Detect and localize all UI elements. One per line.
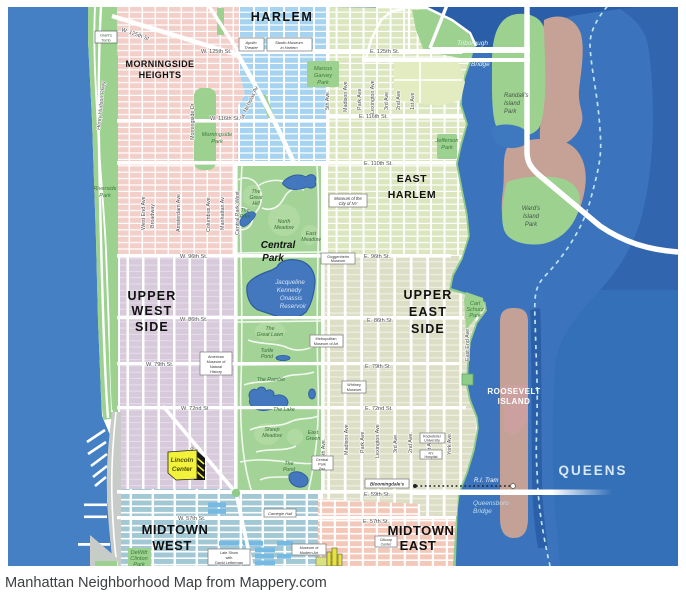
- svg-text:York Ave.: York Ave.: [447, 433, 453, 455]
- svg-text:Madison Ave: Madison Ave: [344, 424, 350, 455]
- svg-text:History: History: [210, 370, 222, 374]
- svg-text:Museum of Art: Museum of Art: [314, 342, 339, 346]
- svg-text:with: with: [226, 556, 233, 560]
- svg-text:The Ramble: The Ramble: [257, 377, 285, 383]
- svg-text:HEIGHTS: HEIGHTS: [139, 70, 182, 80]
- svg-text:in Harlem: in Harlem: [280, 45, 298, 50]
- svg-text:Kennedy: Kennedy: [277, 287, 302, 294]
- svg-text:E. 57th St.: E. 57th St.: [363, 519, 390, 525]
- svg-text:Pond: Pond: [283, 467, 296, 473]
- svg-text:Park: Park: [262, 253, 284, 264]
- svg-text:SIDE: SIDE: [135, 320, 169, 334]
- svg-text:Reservoir: Reservoir: [280, 303, 307, 310]
- svg-text:Meadow: Meadow: [262, 433, 283, 439]
- svg-text:SIDE: SIDE: [411, 322, 445, 336]
- svg-text:ISLAND: ISLAND: [498, 397, 531, 406]
- svg-text:Citicorp: Citicorp: [380, 538, 392, 542]
- svg-text:Triborough: Triborough: [457, 40, 488, 47]
- svg-text:MIDTOWN: MIDTOWN: [388, 523, 455, 538]
- svg-text:EAST: EAST: [397, 173, 427, 185]
- svg-text:Ward's: Ward's: [522, 206, 540, 212]
- svg-text:Park: Park: [504, 109, 517, 115]
- svg-text:UPPER: UPPER: [127, 289, 176, 303]
- svg-text:Bridge: Bridge: [471, 61, 490, 68]
- svg-text:Park: Park: [99, 193, 112, 199]
- svg-text:MIDTOWN: MIDTOWN: [142, 522, 209, 537]
- svg-text:Natural: Natural: [210, 365, 222, 369]
- svg-text:E. 59th St.: E. 59th St.: [364, 492, 391, 498]
- svg-text:Park Ave: Park Ave: [357, 89, 363, 110]
- svg-text:W. 125th St.: W. 125th St.: [201, 49, 232, 55]
- svg-text:Central: Central: [261, 240, 296, 251]
- svg-text:Park: Park: [525, 222, 538, 228]
- svg-text:Meadow: Meadow: [301, 237, 322, 243]
- svg-text:Jefferson: Jefferson: [434, 138, 458, 144]
- svg-text:5th Ave.: 5th Ave.: [321, 439, 327, 458]
- svg-text:Island: Island: [523, 214, 540, 220]
- svg-text:Center: Center: [381, 543, 393, 547]
- svg-text:Tomb: Tomb: [101, 39, 110, 43]
- svg-text:Center: Center: [172, 466, 193, 473]
- svg-text:Modern Art: Modern Art: [300, 551, 320, 555]
- svg-text:The Lake: The Lake: [273, 407, 295, 413]
- svg-text:Madison Ave: Madison Ave: [343, 81, 349, 112]
- svg-text:Late Show: Late Show: [220, 551, 238, 555]
- svg-text:Marcus: Marcus: [314, 66, 333, 72]
- svg-text:1st Ave: 1st Ave: [410, 92, 416, 110]
- svg-text:Theater: Theater: [244, 45, 258, 50]
- svg-text:W. 86th St.: W. 86th St.: [180, 317, 208, 323]
- svg-text:E. 96th St.: E. 96th St.: [364, 254, 391, 260]
- svg-text:E. 86th St.: E. 86th St.: [367, 318, 394, 324]
- svg-text:Museum: Museum: [347, 388, 362, 392]
- svg-text:University: University: [424, 439, 440, 443]
- svg-text:Garvey: Garvey: [314, 73, 333, 79]
- svg-text:R.I. Tram: R.I. Tram: [474, 478, 499, 484]
- svg-text:E. 125th St.: E. 125th St.: [370, 49, 400, 55]
- svg-text:W. 116th St.: W. 116th St.: [210, 116, 241, 122]
- svg-text:Green: Green: [306, 436, 321, 442]
- svg-text:Onassis: Onassis: [280, 295, 302, 302]
- svg-text:Museum of: Museum of: [300, 546, 320, 550]
- svg-text:Broadway: Broadway: [150, 204, 156, 228]
- svg-text:Riverside: Riverside: [93, 186, 116, 192]
- svg-text:Lexington Ave: Lexington Ave: [375, 424, 381, 458]
- svg-text:5th Ave.: 5th Ave.: [325, 91, 331, 110]
- svg-text:Museum of: Museum of: [207, 360, 227, 364]
- svg-text:Hill: Hill: [252, 201, 260, 207]
- svg-text:Park: Park: [441, 145, 454, 151]
- svg-text:EAST: EAST: [409, 305, 447, 319]
- svg-text:2nd Ave: 2nd Ave: [396, 91, 402, 110]
- svg-text:2nd Ave.: 2nd Ave.: [408, 432, 414, 453]
- svg-text:Queensboro: Queensboro: [473, 500, 509, 507]
- svg-text:Lincoln: Lincoln: [171, 457, 194, 464]
- svg-text:MORNINGSIDE: MORNINGSIDE: [126, 59, 195, 69]
- svg-text:Whitney: Whitney: [347, 383, 361, 387]
- svg-text:Morningside: Morningside: [202, 132, 232, 138]
- svg-text:Park: Park: [318, 463, 326, 467]
- svg-text:Island: Island: [504, 101, 521, 107]
- svg-text:3rd Ave.: 3rd Ave.: [393, 433, 399, 453]
- svg-text:Park: Park: [317, 80, 330, 86]
- svg-text:E. 110th St.: E. 110th St.: [364, 161, 393, 167]
- svg-text:Pool: Pool: [240, 214, 251, 220]
- svg-text:Park Ave.: Park Ave.: [360, 430, 366, 453]
- svg-text:W. 72nd St.: W. 72nd St.: [181, 406, 210, 412]
- svg-text:Great Lawn: Great Lawn: [257, 332, 284, 338]
- svg-text:QUEENS: QUEENS: [558, 463, 627, 478]
- svg-text:Metropolitan: Metropolitan: [316, 337, 337, 341]
- svg-text:Central: Central: [316, 458, 328, 462]
- svg-text:UPPER: UPPER: [403, 288, 452, 302]
- svg-text:ROOSEVELT: ROOSEVELT: [487, 387, 540, 396]
- svg-text:Hospital: Hospital: [425, 455, 438, 459]
- svg-text:E. 72nd St.: E. 72nd St.: [365, 406, 393, 412]
- svg-text:Randall's: Randall's: [504, 93, 529, 99]
- svg-text:HARLEM: HARLEM: [251, 10, 313, 24]
- svg-text:W. 79th St.: W. 79th St.: [146, 362, 174, 368]
- svg-text:3rd Ave: 3rd Ave: [384, 92, 390, 110]
- svg-text:Museum: Museum: [331, 259, 346, 263]
- svg-text:Manhattan Av: Manhattan Av: [220, 197, 226, 230]
- svg-text:W. 96th St.: W. 96th St.: [180, 254, 208, 260]
- svg-text:Zoo: Zoo: [319, 467, 326, 471]
- svg-text:Meadow: Meadow: [274, 225, 295, 231]
- svg-text:HARLEM: HARLEM: [388, 189, 437, 201]
- svg-text:Pond: Pond: [261, 354, 274, 360]
- svg-text:Morningside Dr: Morningside Dr: [190, 103, 196, 140]
- svg-text:WEST: WEST: [132, 304, 173, 318]
- svg-text:East End Ave: East End Ave: [465, 329, 471, 361]
- svg-text:City of NY: City of NY: [339, 201, 359, 206]
- svg-text:Park: Park: [133, 562, 146, 568]
- svg-text:Park: Park: [211, 139, 224, 145]
- svg-text:Bridge: Bridge: [473, 508, 492, 515]
- svg-text:E. 79th St.: E. 79th St.: [365, 364, 392, 370]
- svg-text:Lexington Ave: Lexington Ave: [370, 80, 376, 114]
- svg-text:Park: Park: [469, 313, 482, 319]
- svg-text:EAST: EAST: [400, 538, 437, 553]
- svg-text:Amsterdam Ave: Amsterdam Ave: [176, 194, 182, 232]
- svg-text:West End Ave: West End Ave: [141, 196, 147, 230]
- svg-text:Bloomingdale's: Bloomingdale's: [370, 482, 404, 487]
- svg-text:Carnegie Hall: Carnegie Hall: [268, 511, 292, 516]
- svg-text:Jacqueline: Jacqueline: [274, 279, 305, 286]
- svg-text:WEST: WEST: [152, 538, 192, 553]
- svg-text:David Letterman: David Letterman: [215, 561, 243, 565]
- svg-text:Grant's: Grant's: [100, 34, 112, 38]
- svg-text:American: American: [208, 355, 224, 359]
- svg-text:Columbus Ave.: Columbus Ave.: [206, 196, 212, 232]
- svg-text:W. 57th St.: W. 57th St.: [178, 516, 206, 522]
